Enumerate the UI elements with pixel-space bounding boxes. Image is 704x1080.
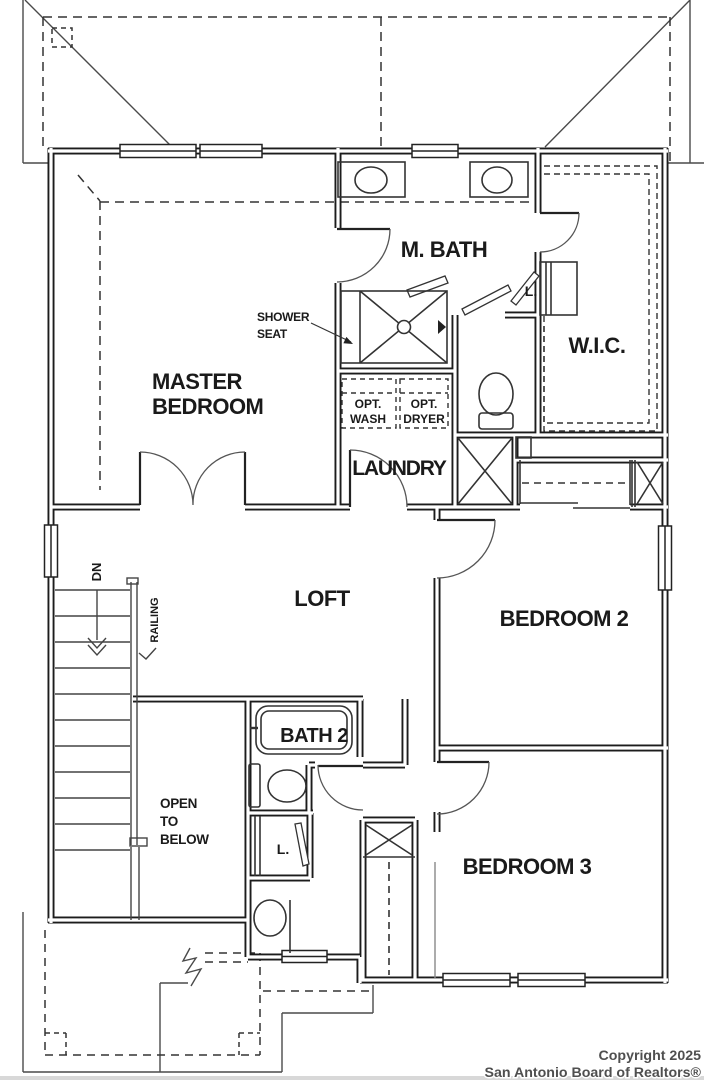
window <box>282 951 327 963</box>
label-open-to-below-line1: OPEN <box>160 796 197 811</box>
label-stairs-dn: DN <box>89 563 104 582</box>
label-opt-dryer-line1: OPT. <box>411 397 438 411</box>
window <box>120 145 196 158</box>
label-shower-seat-line1: SHOWER <box>257 310 310 324</box>
room-label-master-bedroom-line2: BEDROOM <box>152 394 263 419</box>
room-label-m-bath: M. BATH <box>401 237 488 262</box>
room-label-wic: W.I.C. <box>569 333 626 358</box>
shower-drain <box>398 321 411 334</box>
room-label-master-bedroom-line1: MASTER <box>152 369 243 394</box>
label-railing: RAILING <box>149 597 161 642</box>
room-label-laundry: LAUNDRY <box>352 457 447 480</box>
window <box>443 974 510 987</box>
copyright-line2: San Antonio Board of Realtors® <box>485 1065 702 1080</box>
floor-plan-drawing: MASTER BEDROOM M. BATH W.I.C. LAUNDRY LO… <box>0 0 704 1080</box>
room-label-bedroom3: BEDROOM 3 <box>463 854 592 879</box>
room-label-loft: LOFT <box>294 586 350 611</box>
copyright-line1: Copyright 2025 <box>599 1048 702 1064</box>
label-shower-seat-line2: SEAT <box>257 327 288 341</box>
label-linen-bath2: L. <box>277 841 289 857</box>
window <box>412 145 458 158</box>
room-label-bath2: BATH 2 <box>280 725 348 747</box>
label-opt-dryer-line2: DRYER <box>403 412 445 426</box>
label-linen-mbath: L. <box>525 283 537 299</box>
label-opt-wash-line2: WASH <box>350 412 386 426</box>
room-label-bedroom2: BEDROOM 2 <box>500 606 629 631</box>
floor-plan-page: MASTER BEDROOM M. BATH W.I.C. LAUNDRY LO… <box>0 0 704 1080</box>
window <box>659 526 672 590</box>
window <box>518 974 585 987</box>
label-open-to-below-line2: TO <box>160 814 178 829</box>
window <box>200 145 262 158</box>
label-open-to-below-line3: BELOW <box>160 832 209 847</box>
window <box>45 525 58 577</box>
label-opt-wash-line1: OPT. <box>355 397 382 411</box>
